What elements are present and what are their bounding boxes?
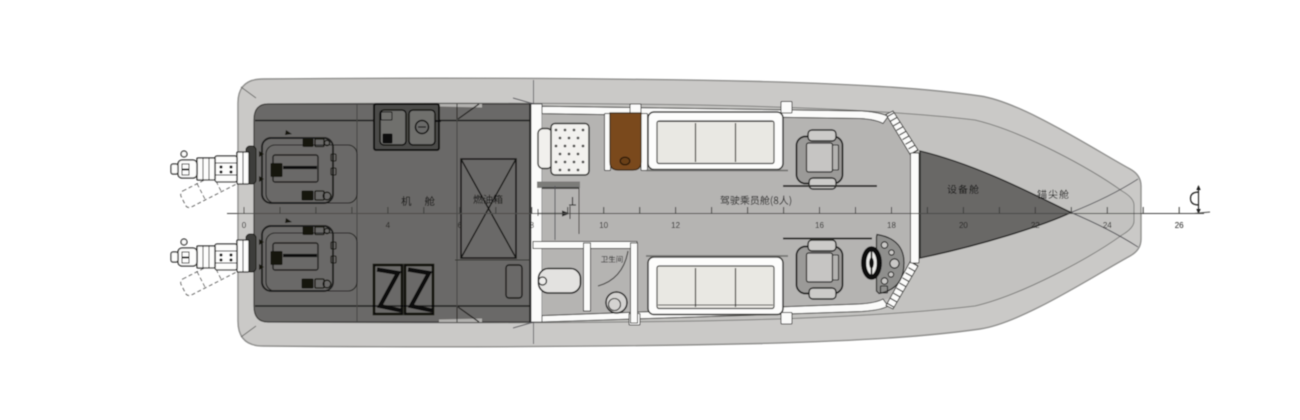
svg-text:20: 20	[959, 221, 968, 230]
svg-text:26: 26	[1175, 221, 1184, 230]
svg-text:22: 22	[1031, 221, 1040, 230]
svg-text:0: 0	[242, 221, 247, 230]
svg-text:12: 12	[671, 221, 680, 230]
svg-text:10: 10	[599, 221, 608, 230]
svg-text:18: 18	[887, 221, 896, 230]
svg-text:8: 8	[530, 221, 535, 230]
svg-text:4: 4	[386, 221, 391, 230]
svg-text:24: 24	[1103, 221, 1112, 230]
svg-text:6: 6	[458, 221, 463, 230]
svg-text:16: 16	[815, 221, 824, 230]
